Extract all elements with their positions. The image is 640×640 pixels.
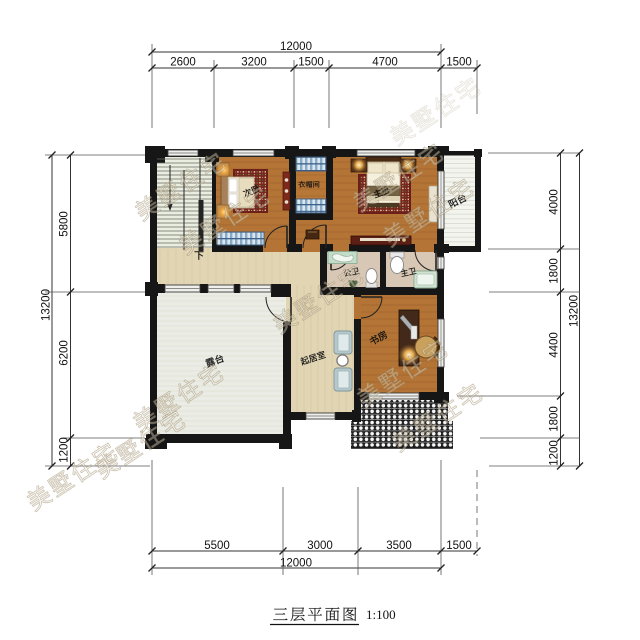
svg-text:1200: 1200 xyxy=(59,437,71,463)
svg-text:1500: 1500 xyxy=(298,57,324,69)
svg-text:3200: 3200 xyxy=(241,57,267,69)
svg-text:1:100: 1:100 xyxy=(366,607,396,622)
svg-text:13200: 13200 xyxy=(569,295,581,327)
svg-text:3500: 3500 xyxy=(386,540,412,552)
svg-text:1800: 1800 xyxy=(549,258,561,284)
svg-text:4000: 4000 xyxy=(549,189,561,215)
svg-text:12000: 12000 xyxy=(280,41,312,53)
svg-text:1500: 1500 xyxy=(446,540,472,552)
svg-text:1200: 1200 xyxy=(549,440,561,466)
svg-text:2600: 2600 xyxy=(170,57,196,69)
svg-text:5500: 5500 xyxy=(204,540,230,552)
svg-text:3000: 3000 xyxy=(307,540,333,552)
svg-text:1500: 1500 xyxy=(446,57,472,69)
svg-text:6200: 6200 xyxy=(59,340,71,366)
svg-text:12000: 12000 xyxy=(280,558,312,570)
svg-text:1800: 1800 xyxy=(549,406,561,432)
svg-text:5800: 5800 xyxy=(59,211,71,237)
svg-text:4400: 4400 xyxy=(549,332,561,358)
svg-text:4700: 4700 xyxy=(372,57,398,69)
svg-text:13200: 13200 xyxy=(41,289,53,321)
